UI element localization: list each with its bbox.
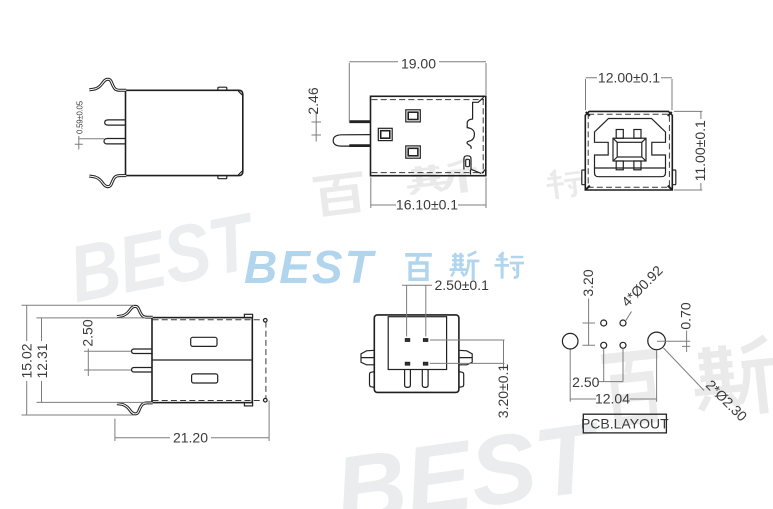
svg-text:21.20: 21.20 <box>173 430 208 446</box>
svg-text:BEST: BEST <box>244 241 377 293</box>
svg-text:12.00±0.1: 12.00±0.1 <box>598 70 660 86</box>
svg-text:12.31: 12.31 <box>34 343 50 378</box>
svg-text:2.50±0.1: 2.50±0.1 <box>435 277 490 293</box>
svg-text:0.59±0.05: 0.59±0.05 <box>76 100 85 134</box>
svg-text:2.50: 2.50 <box>80 319 96 346</box>
svg-text:11.00±0.1: 11.00±0.1 <box>692 120 708 181</box>
svg-text:PCB.LAYOUT: PCB.LAYOUT <box>581 415 669 431</box>
svg-text:16.10±0.1: 16.10±0.1 <box>396 197 458 213</box>
svg-text:0.70: 0.70 <box>678 302 694 329</box>
svg-text:2.46: 2.46 <box>305 87 321 114</box>
svg-text:3.20: 3.20 <box>580 269 596 296</box>
svg-text:2.50: 2.50 <box>572 374 599 390</box>
svg-text:3.20±0.1: 3.20±0.1 <box>495 364 511 419</box>
svg-text:12.04: 12.04 <box>595 391 630 407</box>
svg-text:15.02: 15.02 <box>19 343 35 378</box>
svg-text:19.00: 19.00 <box>401 56 436 72</box>
